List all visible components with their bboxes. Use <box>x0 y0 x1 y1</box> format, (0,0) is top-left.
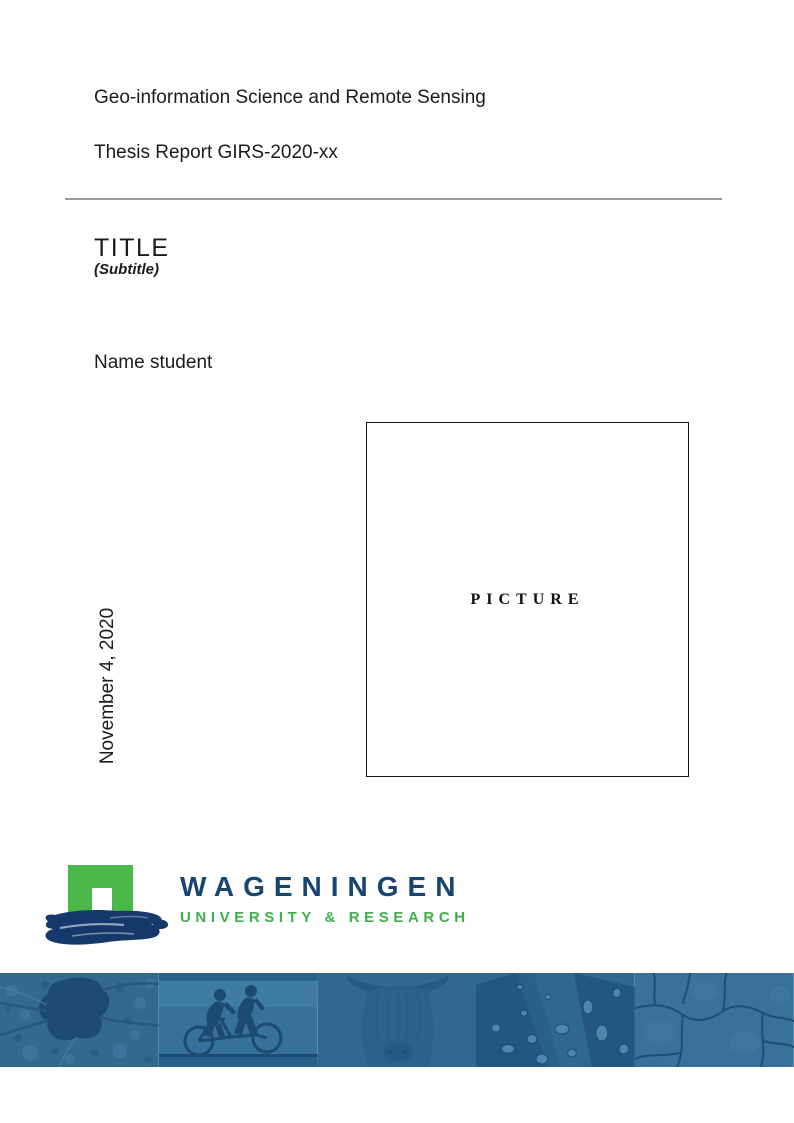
thesis-title: TITLE <box>94 234 170 263</box>
report-id-line: Thesis Report GIRS-2020-xx <box>94 142 338 164</box>
footer-banner <box>0 973 794 1067</box>
banner-image-leaf-droplets <box>476 973 635 1067</box>
thesis-cover-page: Geo-information Science and Remote Sensi… <box>0 0 794 1123</box>
banner-image-tandem-cyclists <box>159 973 318 1067</box>
divider-rule <box>65 198 722 200</box>
banner-image-highland-cow <box>318 973 477 1067</box>
banner-image-aerial-map <box>0 973 159 1067</box>
thesis-subtitle: (Subtitle) <box>94 261 159 278</box>
picture-placeholder-label: PICTURE <box>470 591 584 609</box>
wur-logo: WAGENINGEN UNIVERSITY & RESEARCH <box>40 858 470 958</box>
banner-image-cracked-earth <box>635 973 794 1067</box>
student-name: Name student <box>94 352 212 374</box>
wur-logo-text: WAGENINGEN UNIVERSITY & RESEARCH <box>180 858 470 925</box>
wur-logo-tagline: UNIVERSITY & RESEARCH <box>180 910 470 925</box>
date-vertical: November 4, 2020 <box>97 608 119 764</box>
picture-placeholder-box: PICTURE <box>366 422 689 777</box>
wur-gate-brush-icon <box>40 858 170 958</box>
department-line: Geo-information Science and Remote Sensi… <box>94 87 486 109</box>
wur-logo-brand: WAGENINGEN <box>180 873 470 901</box>
